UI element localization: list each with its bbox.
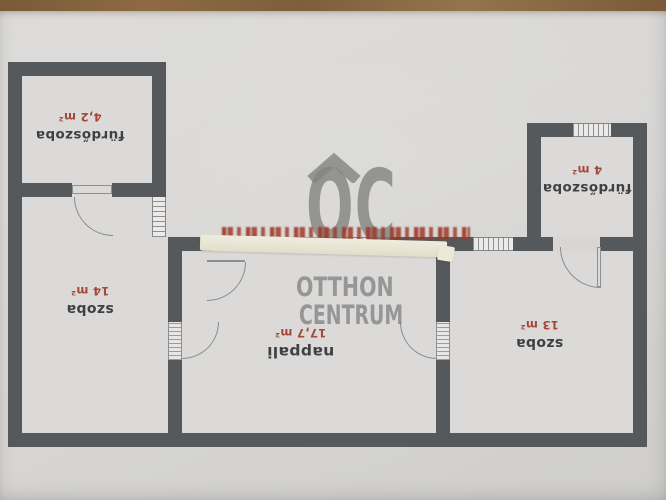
label-szoba-left: szoba 14 m² [30, 280, 150, 322]
room-area: 13 m² [520, 319, 559, 333]
door-leaf-bathroom-left [72, 185, 112, 194]
room-name: szoba [516, 336, 564, 352]
label-szoba-right: szoba 13 m² [482, 313, 597, 357]
wall-bathroom-left-top [8, 62, 166, 76]
floor-plan-paper: OC OTTHON CENTRUM fürdőszoba 4,2 m² szob… [0, 11, 666, 500]
correction-tape-scrap [437, 245, 455, 262]
window-bathroom-right [573, 123, 611, 137]
room-area: 17,7 m² [275, 327, 327, 341]
wall-bathroom-left-right [152, 62, 166, 197]
room-area: 14 m² [71, 285, 110, 299]
wall-facade-d [513, 237, 553, 251]
wall-divider-right-a [436, 251, 450, 322]
wall-divider-left-a [168, 251, 182, 322]
wall-outer-bottom [8, 433, 647, 447]
wall-bathroom-left-bottom-b [112, 183, 166, 197]
label-nappali: nappali 17,7 m² [238, 320, 363, 368]
room-name: szoba [66, 302, 114, 318]
room-name: fürdőszoba [35, 128, 124, 144]
room-area: 4,2 m² [58, 111, 101, 125]
door-threshold-szoba-right [436, 322, 450, 360]
watermark-line1: OTTHON [296, 272, 372, 303]
room-name: nappali [267, 344, 335, 362]
floor-plan-drawing: OC OTTHON CENTRUM fürdőszoba 4,2 m² szob… [0, 0, 666, 500]
window-szoba-right [473, 237, 513, 251]
wall-divider-left-b [168, 360, 182, 433]
wall-bathroom-left-bottom-a [8, 183, 72, 197]
wall-facade-a [168, 237, 203, 251]
floor-plan-photo: OC OTTHON CENTRUM fürdőszoba 4,2 m² szob… [0, 0, 666, 500]
door-threshold-szoba-left [168, 322, 182, 360]
room-area: 4 m² [572, 164, 602, 178]
wall-divider-right-b [436, 360, 450, 433]
wall-bathroom-right-top-a [527, 123, 573, 137]
label-bathroom-right: fürdőszoba 4 m² [528, 155, 646, 205]
label-bathroom-left: fürdőszoba 4,2 m² [20, 103, 140, 151]
window-szoba-left [152, 197, 166, 237]
room-name: fürdőszoba [542, 181, 631, 197]
